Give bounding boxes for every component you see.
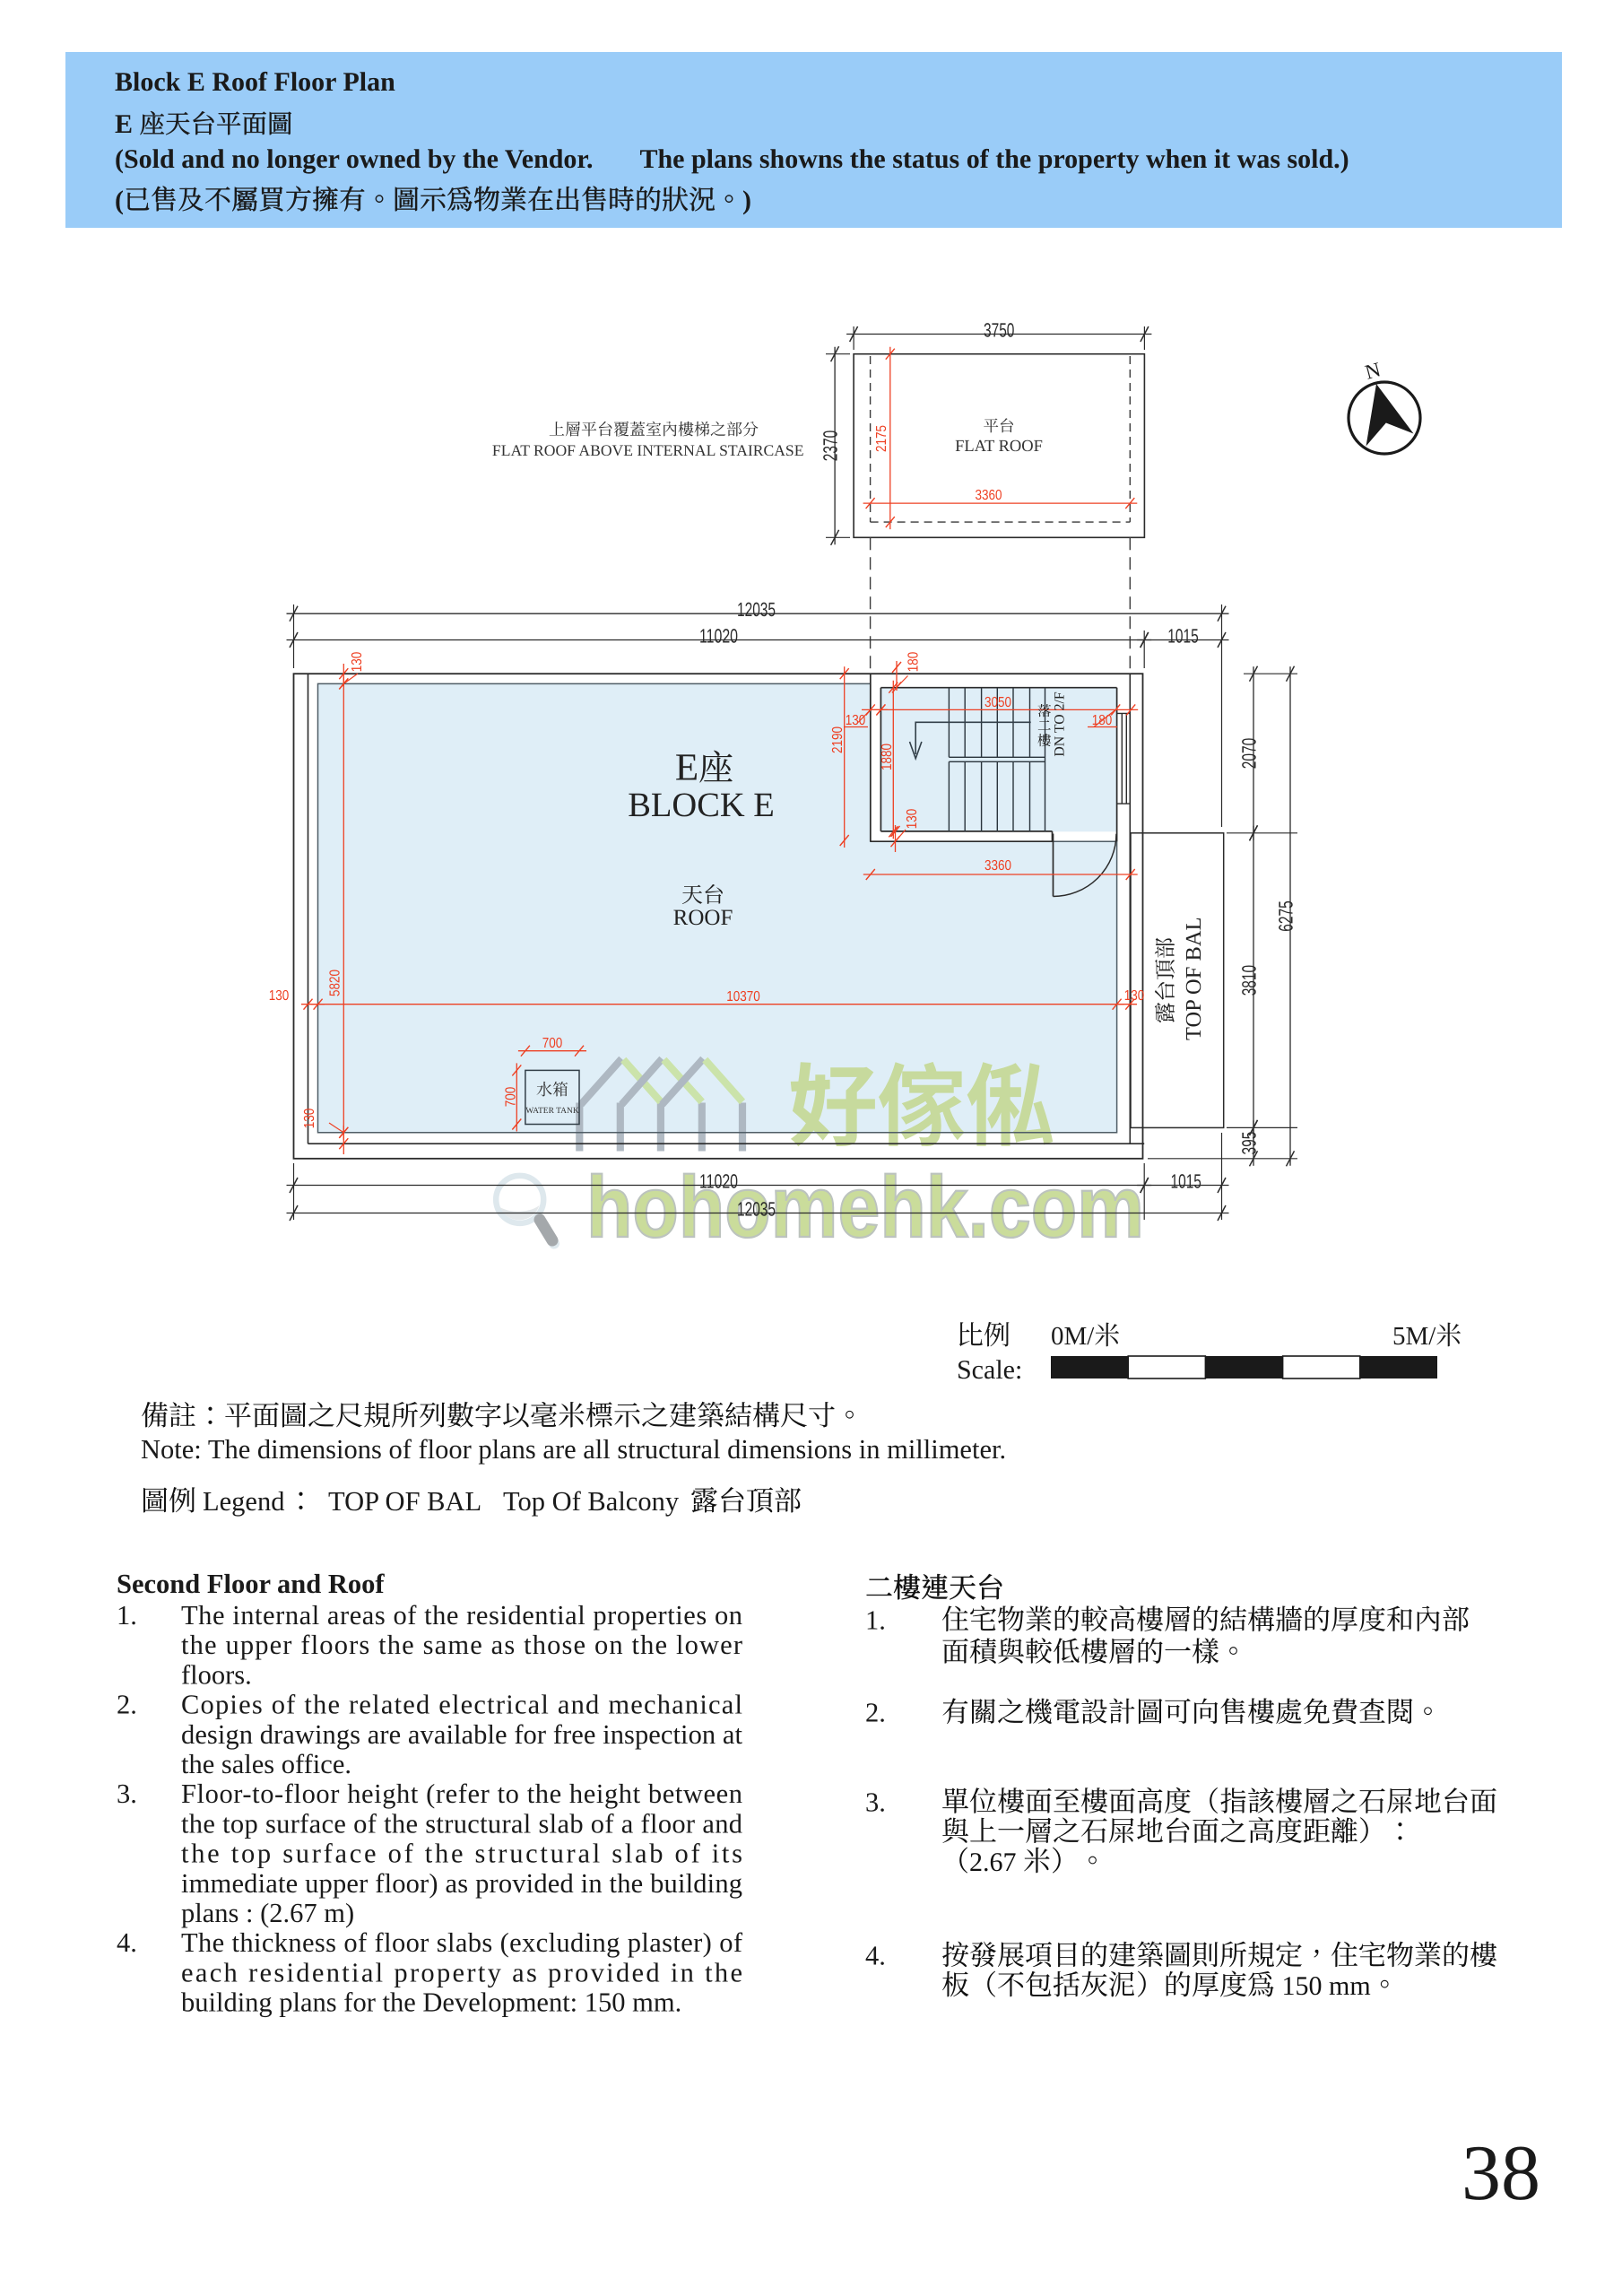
svg-text:2.: 2. (117, 1690, 137, 1720)
svg-text:the top surface of the structu: the top surface of the structural slab o… (181, 1839, 742, 1869)
svg-text:38: 38 (1462, 2130, 1540, 2217)
svg-text:building plans for the Develop: building plans for the Development: 150 … (181, 1987, 681, 2018)
svg-text:E: E (675, 747, 698, 789)
svg-text:(: ( (115, 186, 124, 215)
svg-text:130: 130 (1124, 988, 1145, 1004)
svg-text:Scale:: Scale: (957, 1355, 1022, 1385)
svg-text:Block E Roof Floor Plan: Block E Roof Floor Plan (115, 67, 395, 97)
svg-text:5820: 5820 (328, 970, 343, 996)
svg-text:12035: 12035 (737, 1198, 776, 1221)
svg-text:hohomehk.com: hohomehk.com (586, 1158, 1144, 1256)
svg-text:3050: 3050 (984, 695, 1011, 710)
svg-text:FLAT ROOF ABOVE INTERNAL STAIR: FLAT ROOF ABOVE INTERNAL STAIRCASE (492, 441, 804, 459)
svg-text:1015: 1015 (1167, 625, 1198, 648)
svg-text:3360: 3360 (984, 858, 1011, 874)
svg-text:5M/: 5M/ (1392, 1322, 1436, 1351)
svg-text:DN TO 2/F: DN TO 2/F (1053, 691, 1068, 756)
svg-text:The thickness of floor slabs (: The thickness of floor slabs (excluding … (181, 1927, 743, 1958)
svg-text:130: 130 (905, 809, 920, 830)
svg-text:700: 700 (504, 1087, 519, 1108)
svg-text:Second Floor and Roof: Second Floor and Roof (117, 1569, 385, 1599)
svg-text:700: 700 (542, 1036, 563, 1051)
svg-text:180: 180 (1092, 713, 1113, 728)
svg-text:3750: 3750 (984, 319, 1014, 342)
svg-text:(Sold and no longer owned by t: (Sold and no longer owned by the Vendor.… (115, 144, 1349, 174)
svg-text:BLOCK E: BLOCK E (628, 787, 775, 824)
svg-text:TOP OF BAL: TOP OF BAL (1182, 917, 1206, 1040)
svg-text:130: 130 (350, 652, 365, 673)
svg-text:the sales office.: the sales office. (181, 1749, 351, 1779)
svg-text:The internal areas of the resi: The internal areas of the residential pr… (181, 1600, 742, 1631)
svg-text:4.: 4. (865, 1941, 886, 1971)
svg-text:0M/: 0M/ (1051, 1322, 1095, 1351)
svg-text:1.: 1. (117, 1600, 137, 1631)
svg-text:3.: 3. (865, 1787, 886, 1817)
svg-text:WATER TANK: WATER TANK (525, 1107, 579, 1116)
svg-text:immediate upper floor) as prov: immediate upper floor) as provided in th… (181, 1868, 742, 1899)
svg-text:the top surface of the structu: the top surface of the structural slab o… (181, 1808, 742, 1839)
svg-text:design drawings are available: design drawings are available for free i… (181, 1719, 743, 1750)
svg-text:Note: The dimensions of floor: Note: The dimensions of floor plans are … (141, 1434, 1006, 1465)
svg-text:Top Of Balcony: Top Of Balcony (503, 1486, 680, 1517)
svg-text:TOP OF BAL: TOP OF BAL (328, 1486, 481, 1517)
svg-text:FLAT ROOF: FLAT ROOF (955, 438, 1043, 456)
svg-text:2190: 2190 (830, 726, 846, 753)
svg-text:180: 180 (906, 652, 922, 673)
svg-text:each residential property as p: each residential property as provided in… (181, 1957, 742, 1987)
svg-text:2.: 2. (865, 1698, 886, 1728)
svg-text:1.: 1. (865, 1605, 886, 1636)
svg-text:3810: 3810 (1238, 965, 1261, 996)
svg-text:11020: 11020 (699, 625, 738, 648)
svg-text:plans : (2.67 m): plans : (2.67 m) (181, 1898, 354, 1928)
svg-text:12035: 12035 (737, 598, 776, 621)
svg-text:2.67: 2.67 (969, 1848, 1023, 1877)
svg-text:1015: 1015 (1171, 1170, 1201, 1193)
svg-text:3360: 3360 (976, 488, 1002, 503)
svg-text:E: E (115, 109, 140, 139)
svg-text:2175: 2175 (874, 425, 889, 452)
svg-text:3.: 3. (117, 1779, 137, 1809)
svg-text:10370: 10370 (726, 989, 760, 1004)
svg-text:Floor-to-floor height (refer t: Floor-to-floor height (refer to the heig… (181, 1779, 742, 1809)
svg-text:floors.: floors. (181, 1659, 252, 1690)
svg-text:2370: 2370 (820, 430, 842, 461)
svg-text:): ) (742, 186, 751, 215)
svg-text:the upper floors the same as t: the upper floors the same as those on th… (181, 1630, 742, 1660)
svg-text:2070: 2070 (1238, 738, 1261, 769)
svg-text:Legend: Legend (203, 1486, 284, 1517)
svg-text:130: 130 (302, 1109, 317, 1129)
svg-text:4.: 4. (117, 1927, 137, 1958)
svg-text:ROOF: ROOF (673, 906, 733, 930)
svg-text:11020: 11020 (699, 1170, 738, 1193)
svg-text:395: 395 (1238, 1132, 1261, 1155)
svg-text:130: 130 (846, 713, 866, 728)
svg-text:130: 130 (269, 988, 290, 1004)
svg-text:6275: 6275 (1275, 900, 1297, 931)
svg-text:1880: 1880 (880, 744, 895, 770)
svg-text:150 mm: 150 mm (1275, 1971, 1371, 2001)
svg-text:Copies of the related electric: Copies of the related electrical and mec… (181, 1690, 742, 1720)
